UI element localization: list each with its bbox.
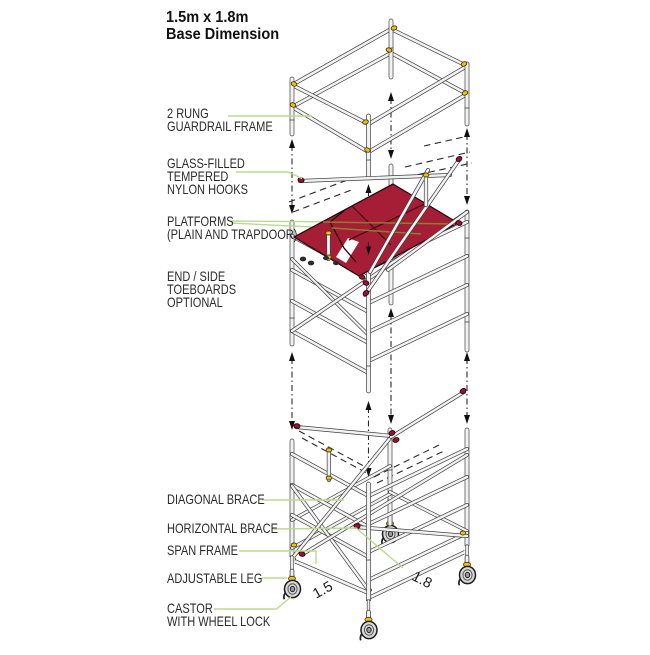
svg-text:1.5: 1.5	[310, 579, 335, 603]
svg-text:1.8: 1.8	[409, 569, 434, 592]
